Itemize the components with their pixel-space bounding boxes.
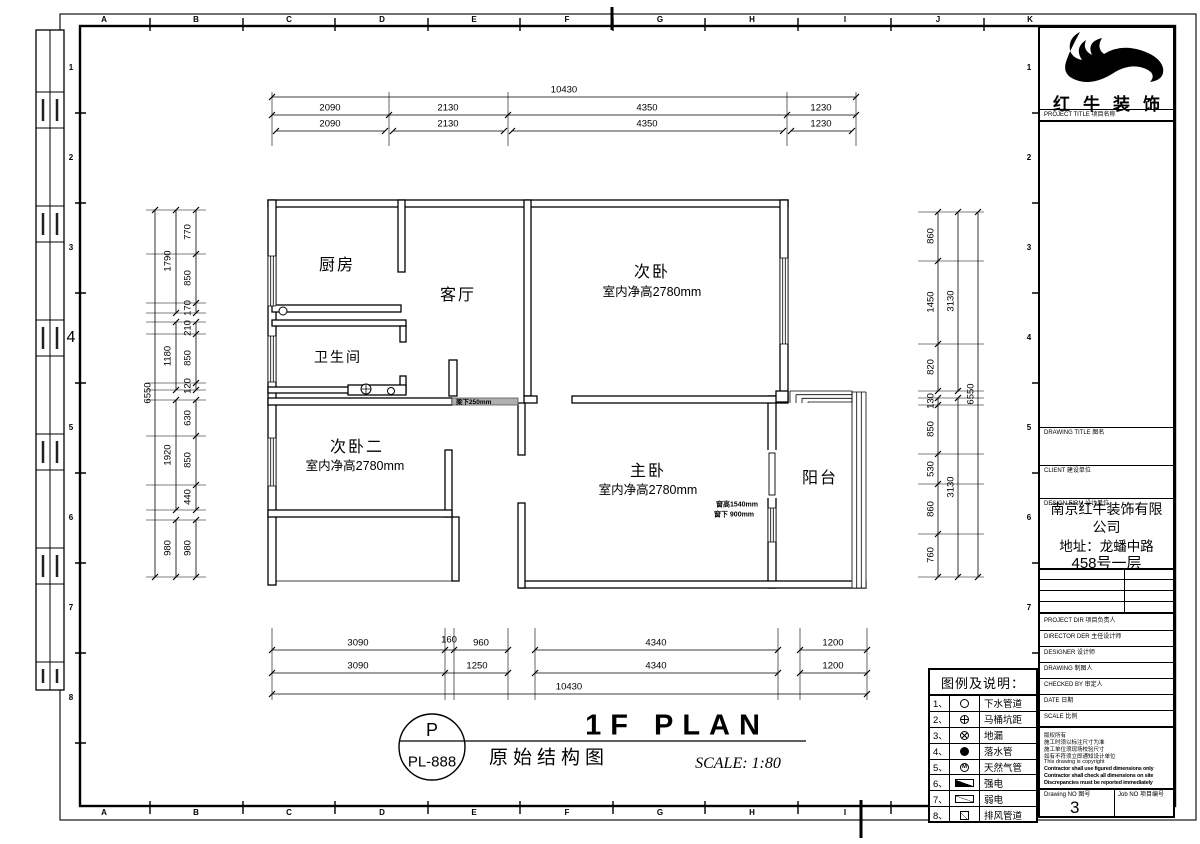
drawing-by-label: DRAWING 制图人 xyxy=(1044,666,1092,672)
grid-letter: F xyxy=(565,16,570,24)
legend-row: 2、 马桶坑距 xyxy=(930,712,1036,728)
dim-label: 850 xyxy=(926,421,936,437)
grid-letter: C xyxy=(286,16,292,24)
bottom-row-divider xyxy=(1114,788,1115,817)
dim-label: 3130 xyxy=(946,290,956,311)
gas-pipe-icon-letter: M xyxy=(962,764,967,770)
dim-label: 6550 xyxy=(143,382,153,403)
drawing-no-value: 3 xyxy=(1070,798,1079,818)
grid-letter: H xyxy=(749,16,755,24)
grid-number: 4 xyxy=(67,330,76,346)
dim-label: 160 xyxy=(441,635,457,645)
dim-label: 980 xyxy=(163,540,173,556)
project-dir-label: PROJECT DIR 项目负责人 xyxy=(1044,618,1116,624)
legend-table: 图例及说明： 1、 下水管道 2、 马桶坑距 3、 地漏 4、 落水管 5、 M… xyxy=(928,668,1038,823)
dim-label: 760 xyxy=(926,547,936,563)
dim-label: 3090 xyxy=(347,661,368,671)
room-note-master: 室内净高2780mm xyxy=(599,484,698,497)
dim-label: 4350 xyxy=(636,119,657,129)
grid-letter: D xyxy=(379,16,385,24)
copyright-note: Contractor shall use figured dimensions … xyxy=(1044,766,1153,772)
legend-row: 8、 排风管道 xyxy=(930,807,1036,823)
strong-power-icon xyxy=(955,779,974,787)
legend-label: 落水管 xyxy=(980,744,1036,759)
grid-number: 4 xyxy=(1027,334,1031,342)
legend-row: 5、 M 天然气管 xyxy=(930,760,1036,776)
dim-label: 1250 xyxy=(466,661,487,671)
legend-row: 6、 强电 xyxy=(930,775,1036,791)
dim-label: 1180 xyxy=(163,346,173,366)
dim-label: 6550 xyxy=(966,383,976,404)
legend-no: 2、 xyxy=(930,712,950,727)
grid-letter: H xyxy=(749,809,755,817)
grid-letter: J xyxy=(936,16,940,24)
scale-label: SCALE 比例 xyxy=(1044,714,1077,720)
grid-number: 7 xyxy=(69,604,73,612)
grid-number: 1 xyxy=(1027,64,1031,72)
legend-no: 1、 xyxy=(930,696,950,711)
date-label: DATE 日期 xyxy=(1044,698,1073,704)
project-title-label: PROJECT TITLE 项目名称 xyxy=(1044,112,1115,118)
downpipe-icon xyxy=(960,747,969,756)
grid-number: 2 xyxy=(69,154,73,162)
window-height-annotation: 窗高1540mm xyxy=(716,502,758,509)
dim-label: 130 xyxy=(926,393,936,409)
dim-label: 120 xyxy=(183,378,193,394)
grid-letter: D xyxy=(379,809,385,817)
room-label-living: 客厅 xyxy=(440,288,476,304)
grid-number: 1 xyxy=(69,64,73,72)
legend-title: 图例及说明： xyxy=(930,670,1036,696)
grid-letter: F xyxy=(565,809,570,817)
grid-number: 8 xyxy=(69,694,73,702)
grid-letter: A xyxy=(101,809,107,817)
designer-label: DESIGNER 设计师 xyxy=(1044,650,1095,656)
room-label-balcony: 阳台 xyxy=(802,471,838,487)
dim-label: 210 xyxy=(183,320,193,336)
dim-label: 4340 xyxy=(645,661,666,671)
dim-label: 960 xyxy=(473,638,489,648)
beam-annotation: 梁下250mm xyxy=(456,400,491,407)
grid-letter: C xyxy=(286,809,292,817)
dim-label: 2090 xyxy=(319,119,340,129)
dim-label: 1230 xyxy=(810,103,831,113)
grid-number: 6 xyxy=(69,514,73,522)
checked-by-label: CHECKED BY 审定人 xyxy=(1044,682,1103,688)
window-sill-annotation: 窗下 900mm xyxy=(714,512,754,519)
drain-pipe-icon xyxy=(279,307,287,315)
client-label: CLIENT 建设单位 xyxy=(1044,468,1091,474)
grid-number: 7 xyxy=(1027,604,1031,612)
copyright-note: Contractor shall check all dimensions on… xyxy=(1044,773,1153,779)
legend-label: 强电 xyxy=(980,775,1036,790)
legend-label: 天然气管 xyxy=(980,760,1036,775)
company-name-line2: 公司 xyxy=(1040,517,1173,537)
legend-label: 地漏 xyxy=(980,728,1036,743)
vent-duct-icon xyxy=(960,811,969,820)
dim-label: 630 xyxy=(183,410,193,426)
dim-label: 440 xyxy=(183,489,193,505)
dim-label: 4350 xyxy=(636,103,657,113)
legend-label: 下水管道 xyxy=(980,696,1036,711)
grid-letter: I xyxy=(844,16,846,24)
plan-subtitle: 原始结构图 xyxy=(489,749,609,768)
legend-no: 7、 xyxy=(930,791,950,806)
copyright-note: This drawing is copyright xyxy=(1044,759,1105,765)
dim-label: 820 xyxy=(926,359,936,375)
room-label-bath: 卫生间 xyxy=(314,350,362,364)
grid-letter: G xyxy=(657,16,663,24)
drawing-no-label: Drawing NO 图号 xyxy=(1044,792,1090,798)
grid-number: 2 xyxy=(1027,154,1031,162)
room-label-bed3: 次卧二 xyxy=(330,440,384,456)
job-no-label: Job NO 项目编号 xyxy=(1118,792,1164,798)
dim-label: 850 xyxy=(183,350,193,366)
director-label: DIRECTOR DER 主任设计师 xyxy=(1044,634,1121,640)
room-label-kitchen: 厨房 xyxy=(319,258,355,274)
dim-label: 1230 xyxy=(810,119,831,129)
grid-letter: B xyxy=(193,809,199,817)
floor-drain-icon xyxy=(960,731,969,740)
grid-number: 6 xyxy=(1027,514,1031,522)
grid-number: 5 xyxy=(69,424,73,432)
dim-label: 2130 xyxy=(437,119,458,129)
dim-label: 770 xyxy=(183,224,193,240)
dim-label: 10430 xyxy=(556,682,582,692)
toilet-pit-icon xyxy=(960,715,969,724)
room-label-bed2: 次卧 xyxy=(634,265,670,281)
drain-pipe-icon xyxy=(388,388,395,395)
legend-no: 8、 xyxy=(930,807,950,823)
table-divider xyxy=(1124,568,1125,612)
legend-no: 4、 xyxy=(930,744,950,759)
dim-label: 3130 xyxy=(946,476,956,497)
copyright-note: Discrepancies must be reported immediate… xyxy=(1044,780,1153,786)
dim-label: 530 xyxy=(926,461,936,477)
grid-number: 3 xyxy=(1027,244,1031,252)
dim-label: 860 xyxy=(926,228,936,244)
dim-label: 2130 xyxy=(437,103,458,113)
grid-letter: E xyxy=(471,809,476,817)
grid-letter: E xyxy=(471,16,476,24)
drain-pipe-icon xyxy=(960,699,969,708)
plan-scale: SCALE: 1:80 xyxy=(695,756,781,772)
grid-letter: G xyxy=(657,809,663,817)
legend-label: 排风管道 xyxy=(980,807,1036,823)
room-note-bed2: 室内净高2780mm xyxy=(603,286,702,299)
grid-letter: I xyxy=(844,809,846,817)
legend-row: 7、 弱电 xyxy=(930,791,1036,807)
dim-label: 170 xyxy=(183,300,193,316)
dim-label: 980 xyxy=(183,540,193,556)
dim-label: 3090 xyxy=(347,638,368,648)
grid-number: 5 xyxy=(1027,424,1031,432)
plan-title: 1F PLAN xyxy=(585,712,769,741)
dim-label: 850 xyxy=(183,270,193,286)
dim-label: 850 xyxy=(183,452,193,468)
dim-label: 860 xyxy=(926,501,936,517)
weak-power-icon xyxy=(955,795,974,803)
dim-label: 1450 xyxy=(926,291,936,312)
dim-label: 1790 xyxy=(163,250,173,271)
legend-no: 3、 xyxy=(930,728,950,743)
title-block: 红牛装饰 PROJECT TITLE 项目名称 DRAWING TITLE 图名… xyxy=(1038,26,1175,818)
legend-row: 1、 下水管道 xyxy=(930,696,1036,712)
gas-pipe-icon: M xyxy=(960,763,969,772)
grid-letter: K xyxy=(1027,16,1033,24)
legend-row: 3、 地漏 xyxy=(930,728,1036,744)
dim-label: 2090 xyxy=(319,103,340,113)
drawing-sheet: A B C D E F G H I J K A B C D E F G H I … xyxy=(0,0,1200,844)
plan-badge-number: PL-888 xyxy=(408,755,456,770)
drawing-title-label: DRAWING TITLE 图名 xyxy=(1044,430,1104,436)
room-note-bed3: 室内净高2780mm xyxy=(306,460,405,473)
legend-no: 5、 xyxy=(930,760,950,775)
signature-strip xyxy=(36,30,64,690)
dim-label: 1920 xyxy=(163,444,173,465)
room-label-master: 主卧 xyxy=(630,464,666,480)
legend-row: 4、 落水管 xyxy=(930,744,1036,760)
dim-label: 1200 xyxy=(822,661,843,671)
dim-label: 10430 xyxy=(551,85,577,95)
grid-letter: A xyxy=(101,16,107,24)
legend-label: 马桶坑距 xyxy=(980,712,1036,727)
grid-number: 3 xyxy=(69,244,73,252)
dim-label: 4340 xyxy=(645,638,666,648)
grid-letter: B xyxy=(193,16,199,24)
plan-badge-letter: P xyxy=(426,721,438,739)
legend-no: 6、 xyxy=(930,775,950,790)
legend-label: 弱电 xyxy=(980,791,1036,806)
rednest-bull-logo xyxy=(1046,30,1171,86)
dim-label: 1200 xyxy=(822,638,843,648)
company-name-line1: 南京红牛装饰有限 xyxy=(1040,499,1173,519)
